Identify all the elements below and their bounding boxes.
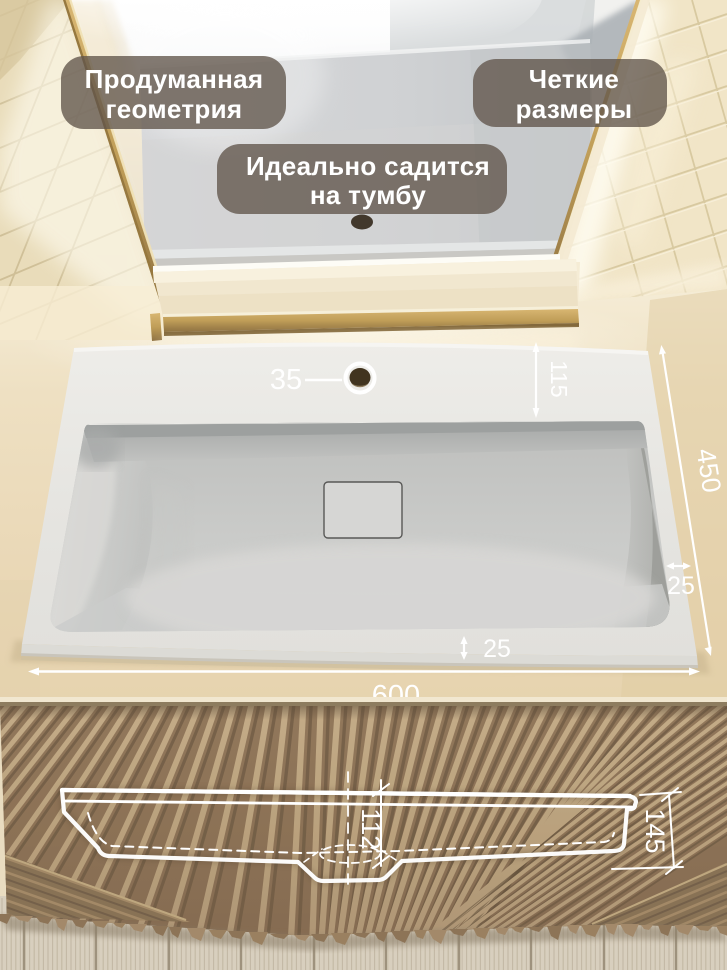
svg-text:на тумбу: на тумбу bbox=[310, 180, 427, 210]
svg-text:25: 25 bbox=[483, 635, 511, 663]
svg-text:Четкие: Четкие bbox=[529, 64, 619, 94]
svg-text:115: 115 bbox=[546, 360, 572, 397]
svg-text:размеры: размеры bbox=[516, 94, 633, 124]
svg-text:25: 25 bbox=[667, 572, 695, 600]
svg-text:геометрия: геометрия bbox=[106, 94, 243, 124]
svg-text:112: 112 bbox=[356, 808, 386, 849]
svg-text:145: 145 bbox=[640, 808, 670, 853]
svg-text:Продуманная: Продуманная bbox=[85, 64, 264, 94]
svg-text:35: 35 bbox=[270, 364, 302, 396]
svg-text:Идеально садится: Идеально садится bbox=[246, 151, 490, 181]
